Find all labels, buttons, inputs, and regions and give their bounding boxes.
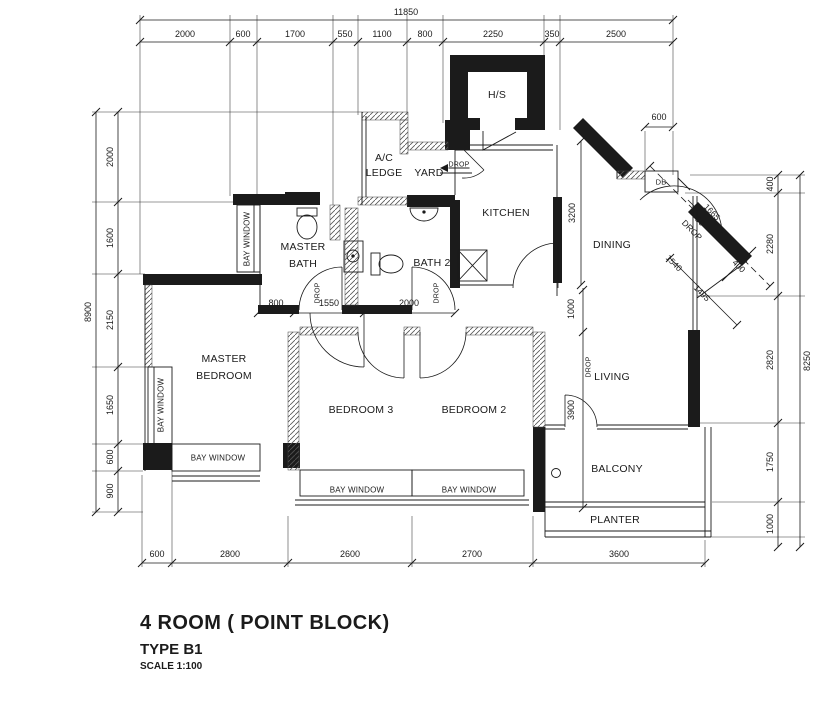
dim-bottom-1: 600 bbox=[149, 549, 164, 559]
bay-window-label-master-bottom: BAY WINDOW bbox=[191, 454, 246, 463]
room-label-balcony: BALCONY bbox=[591, 463, 643, 475]
walls-thin bbox=[145, 112, 747, 537]
dim-top-3: 1700 bbox=[285, 29, 305, 39]
dim-hall-2: 1550 bbox=[319, 298, 339, 308]
dim-top-8: 350 bbox=[544, 29, 559, 39]
floor-shaft-icon bbox=[458, 250, 487, 281]
dim-left-3: 2150 bbox=[105, 310, 115, 330]
room-label-bedroom3: BEDROOM 3 bbox=[329, 404, 394, 416]
floor-plan-geometry bbox=[0, 0, 836, 703]
dim-top-2: 600 bbox=[235, 29, 250, 39]
dim-hall-1: 800 bbox=[268, 298, 283, 308]
floor-plan-drawing: 11850 2000 600 1700 550 1100 800 2250 35… bbox=[0, 0, 836, 703]
toilet-master-bath-icon bbox=[297, 208, 317, 239]
dim-right-2: 2280 bbox=[765, 234, 775, 254]
drop-label-bath2: DROP bbox=[434, 282, 441, 303]
room-label-master-bedroom-line2: BEDROOM bbox=[196, 370, 252, 382]
room-label-bedroom2: BEDROOM 2 bbox=[442, 404, 507, 416]
dim-right-5: 1000 bbox=[765, 514, 775, 534]
dim-right-3: 2820 bbox=[765, 350, 775, 370]
dim-top-total: 11850 bbox=[394, 7, 418, 17]
dim-left-1: 2000 bbox=[105, 147, 115, 167]
dim-top-9: 2500 bbox=[606, 29, 626, 39]
dim-top-1: 2000 bbox=[175, 29, 195, 39]
dim-left-6: 900 bbox=[105, 483, 115, 498]
room-label-ac-ledge-line1: A/C bbox=[375, 152, 393, 164]
dim-bottom-3: 2600 bbox=[340, 549, 360, 559]
dim-top-7: 2250 bbox=[483, 29, 503, 39]
room-label-hs: H/S bbox=[488, 89, 506, 101]
title-block: 4 ROOM ( POINT BLOCK) TYPE B1 SCALE 1:10… bbox=[140, 612, 390, 672]
dim-right-1: 400 bbox=[765, 176, 775, 191]
dim-living-side: 3900 bbox=[566, 400, 576, 420]
dim-bottom-4: 2700 bbox=[462, 549, 482, 559]
room-label-db: DB bbox=[656, 178, 667, 187]
room-label-living: LIVING bbox=[594, 371, 630, 383]
plan-type: TYPE B1 bbox=[140, 641, 390, 658]
bay-window-label-master-left: BAY WINDOW bbox=[157, 378, 166, 433]
floor-plan-page: 11850 2000 600 1700 550 1100 800 2250 35… bbox=[0, 0, 836, 703]
room-label-master-bedroom-line1: MASTER bbox=[202, 353, 247, 365]
dim-left-total: 8900 bbox=[83, 302, 93, 322]
dim-living-top: 1000 bbox=[566, 299, 576, 319]
dim-left-2: 1600 bbox=[105, 228, 115, 248]
dim-hall-3: 2000 bbox=[399, 298, 419, 308]
walls-black bbox=[143, 55, 752, 512]
dim-top-6: 800 bbox=[417, 29, 432, 39]
room-label-dining: DINING bbox=[593, 239, 631, 251]
drop-label-balcony: DROP bbox=[586, 356, 593, 377]
balcony-floor-trap-icon bbox=[552, 469, 561, 478]
toilet-bath2-icon bbox=[371, 253, 403, 275]
dim-top-4: 550 bbox=[337, 29, 352, 39]
bay-window-label-bedroom3: BAY WINDOW bbox=[330, 486, 385, 495]
dim-right-total: 8250 bbox=[802, 351, 812, 371]
room-label-master-bath-line2: BATH bbox=[289, 258, 317, 270]
room-label-yard: YARD bbox=[414, 167, 443, 179]
basin-bath2-icon bbox=[410, 208, 438, 221]
room-label-kitchen: KITCHEN bbox=[482, 207, 530, 219]
dim-kitchen-side: 3200 bbox=[567, 203, 577, 223]
room-label-master-bath-line1: MASTER bbox=[281, 241, 326, 253]
dim-left-5: 600 bbox=[105, 449, 115, 464]
dim-niche: 600 bbox=[651, 112, 666, 122]
drop-label-yard: DROP bbox=[448, 162, 469, 169]
bay-window-label-top-left: BAY WINDOW bbox=[243, 212, 252, 267]
room-label-bath2: BATH 2 bbox=[413, 257, 450, 269]
dim-bottom-2: 2800 bbox=[220, 549, 240, 559]
plan-title: 4 ROOM ( POINT BLOCK) bbox=[140, 612, 390, 635]
dim-left-4: 1650 bbox=[105, 395, 115, 415]
room-label-planter: PLANTER bbox=[590, 514, 640, 526]
bay-window-label-bedroom2: BAY WINDOW bbox=[442, 486, 497, 495]
dim-right-4: 1750 bbox=[765, 452, 775, 472]
room-label-ac-ledge-line2: LEDGE bbox=[366, 167, 403, 179]
plan-scale: SCALE 1:100 bbox=[140, 661, 390, 672]
dim-bottom-5: 3600 bbox=[609, 549, 629, 559]
drop-label-master-bath: DROP bbox=[315, 282, 322, 303]
dim-top-5: 1100 bbox=[372, 29, 391, 39]
